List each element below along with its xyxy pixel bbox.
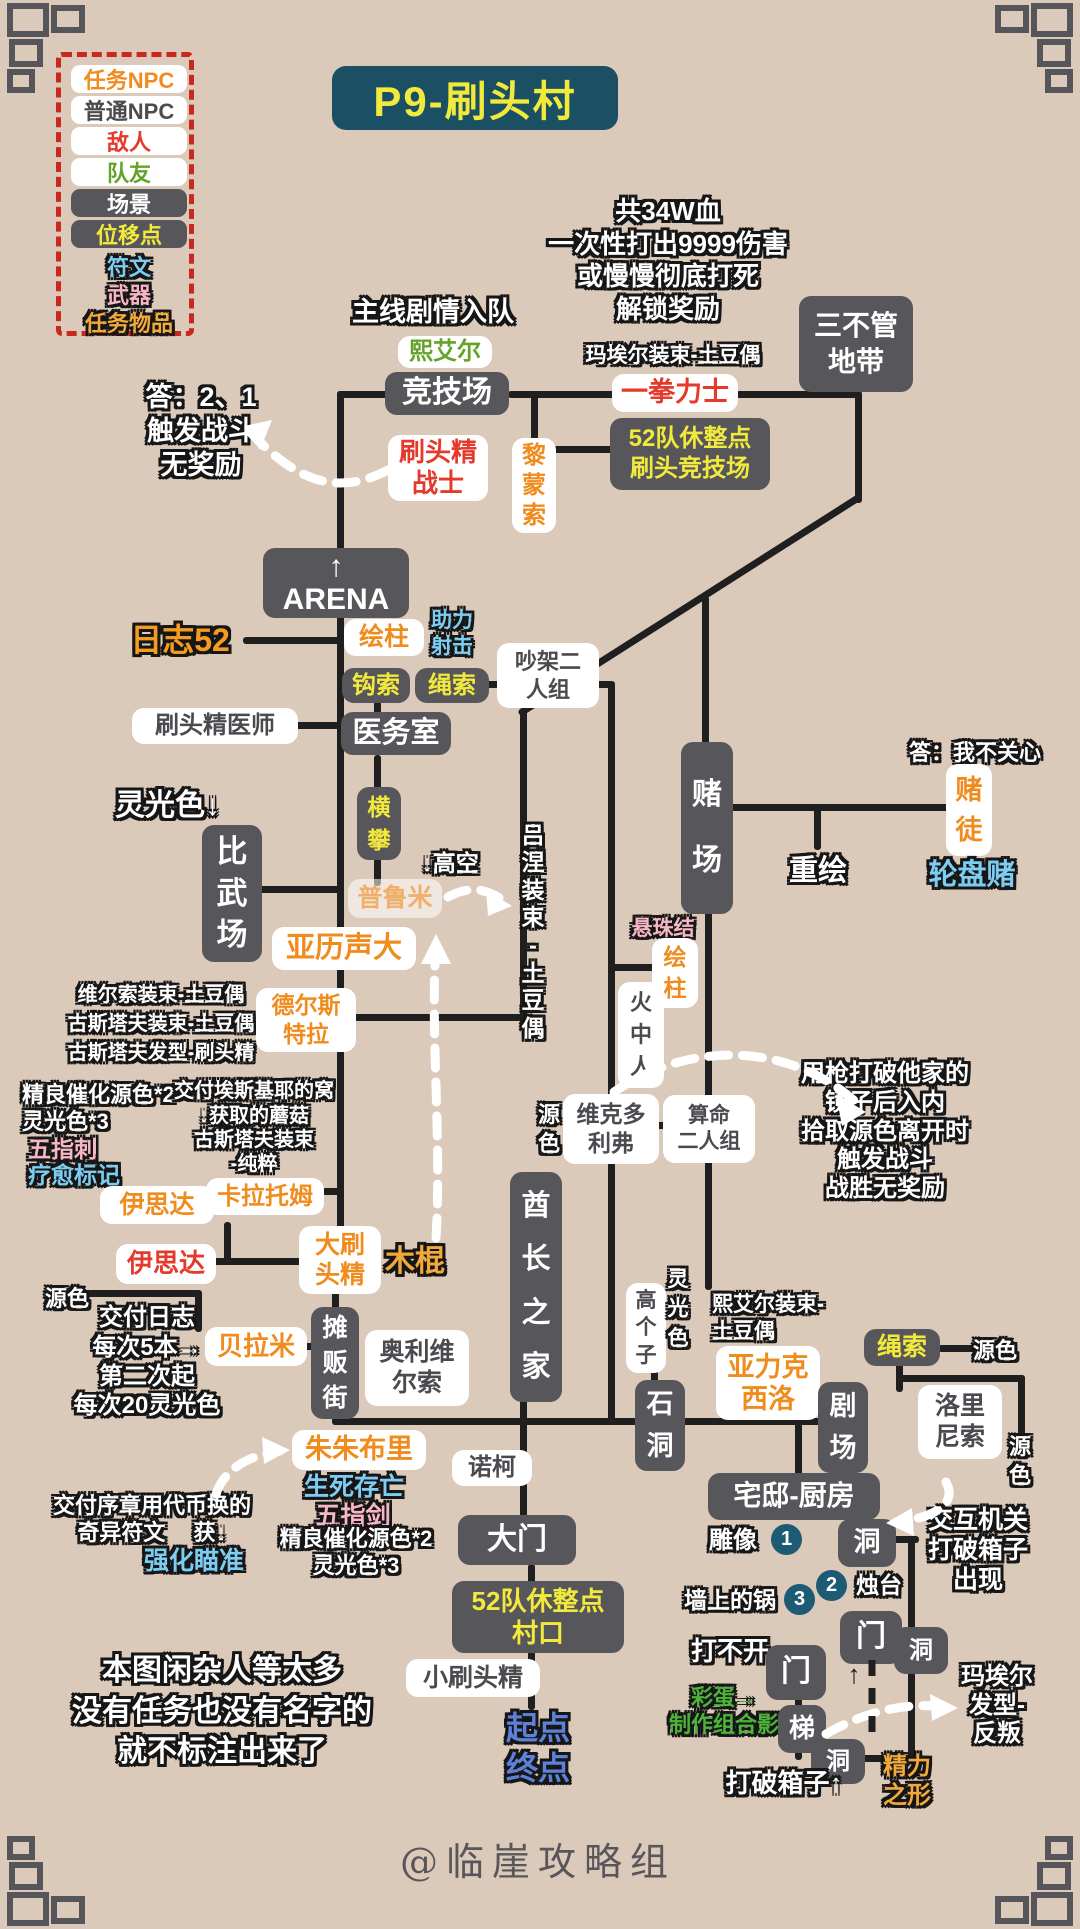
arrow-up-to-pulumi (434, 946, 437, 1238)
dashed-arrows-layer (0, 0, 1080, 1929)
arrow-to-answer (250, 432, 388, 483)
arrow-to-mirror-note (614, 1055, 858, 1104)
arrow-to-dong-head (886, 1508, 914, 1536)
arrow-to-maaier-hair-head (930, 1694, 958, 1721)
arrow-to-maaier-hair (826, 1706, 948, 1734)
arrow-up-to-pulumi-head (421, 934, 451, 964)
arrow-to-zhuzhubuli-head (262, 1437, 290, 1464)
watermark: @临崖攻略组 (348, 1828, 728, 1888)
map-canvas: 任务NPC普通NPC敌人队友场景位移点符文武器任务物品 P9-刷头村 共34W血… (0, 0, 1080, 1929)
